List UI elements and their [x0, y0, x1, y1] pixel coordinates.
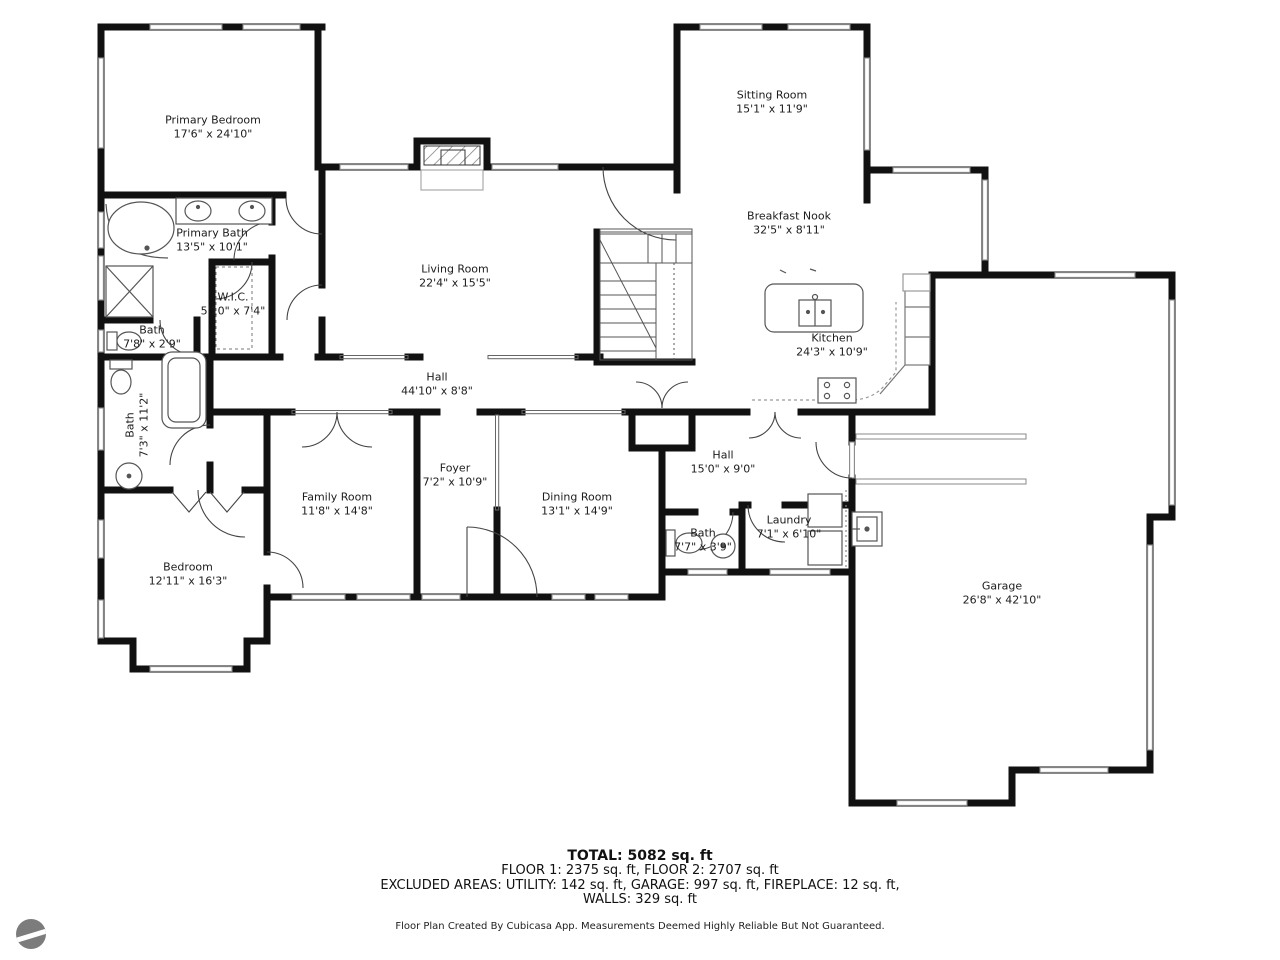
- room-label-breakfast-nook: Breakfast Nook 32'5" x 8'11": [747, 210, 831, 237]
- room-label-garage: Garage 26'8" x 42'10": [963, 580, 1042, 607]
- fireplace-icon: [421, 146, 483, 190]
- disclaimer-text: Floor Plan Created By Cubicasa App. Meas…: [0, 921, 1280, 932]
- room-label-family-room: Family Room 11'8" x 14'8": [301, 491, 373, 518]
- floor-areas-text: FLOOR 1: 2375 sq. ft, FLOOR 2: 2707 sq. …: [0, 864, 1280, 879]
- room-label-living-room: Living Room 22'4" x 15'5": [419, 263, 491, 290]
- room-label-bath-left: Bath 7'3" x 11'2": [124, 393, 151, 458]
- garage-rail: [856, 479, 1026, 484]
- area-summary: TOTAL: 5082 sq. ft FLOOR 1: 2375 sq. ft,…: [0, 849, 1280, 932]
- fridge-icon: [903, 274, 930, 291]
- toilet-icon: [111, 370, 131, 394]
- room-label-hall-main: Hall 44'10" x 8'8": [401, 371, 473, 398]
- sink-icon: [239, 201, 265, 221]
- floor-plan-drawing: [0, 0, 1280, 960]
- bifold-door-icon: [172, 492, 206, 512]
- room-label-bath-rear: Bath 7'7" x 3'9": [674, 527, 732, 554]
- room-label-hall-rear: Hall 15'0" x 9'0": [691, 449, 756, 476]
- room-label-primary-bedroom: Primary Bedroom 17'6" x 24'10": [165, 114, 261, 141]
- stove-icon: [818, 378, 856, 403]
- sink-icon: [185, 201, 211, 221]
- garage-detail: [856, 434, 1026, 484]
- room-label-kitchen: Kitchen 24'3" x 10'9": [796, 332, 868, 359]
- room-label-primary-bath: Primary Bath 13'5" x 10'1": [176, 227, 248, 254]
- room-label-foyer: Foyer 7'2" x 10'9": [423, 462, 488, 489]
- toilet-tank: [107, 332, 117, 350]
- total-area-text: TOTAL: 5082 sq. ft: [0, 849, 1280, 864]
- cubicasa-logo: [16, 919, 46, 949]
- room-label-bedroom: Bedroom 12'11" x 16'3": [149, 561, 228, 588]
- room-label-sitting-room: Sitting Room 15'1" x 11'9": [736, 89, 808, 116]
- room-label-wic: W.I.C. 5'10" x 7'4": [201, 291, 266, 318]
- walls-area-text: WALLS: 329 sq. ft: [0, 893, 1280, 908]
- room-label-bath-small: Bath 7'8" x 2'9": [123, 324, 181, 351]
- walls: [101, 27, 1172, 803]
- bifold-door-icon: [210, 492, 244, 512]
- bathtub-icon: [108, 202, 174, 254]
- room-label-laundry: Laundry 7'1" x 6'10": [757, 514, 822, 541]
- garage-rail: [856, 434, 1026, 439]
- excluded-areas-text: EXCLUDED AREAS: UTILITY: 142 sq. ft, GAR…: [0, 879, 1280, 894]
- stairs-icon: [600, 229, 692, 360]
- room-label-dining-room: Dining Room 13'1" x 14'9": [541, 491, 613, 518]
- floor-plan-page: Primary Bedroom 17'6" x 24'10" Sitting R…: [0, 0, 1280, 960]
- toilet-tank: [110, 360, 132, 369]
